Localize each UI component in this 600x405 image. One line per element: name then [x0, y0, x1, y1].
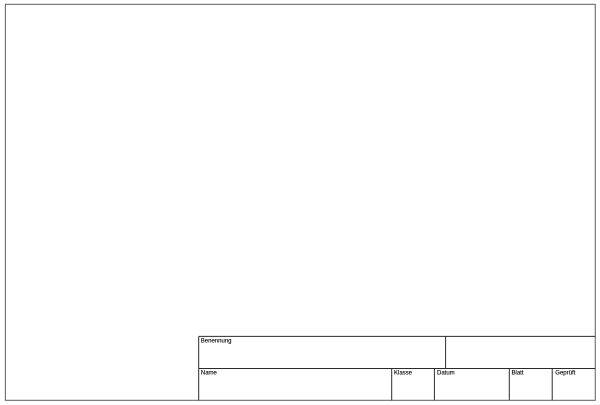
svg-text:Klasse: Klasse	[394, 371, 413, 377]
svg-text:Datum: Datum	[437, 371, 455, 377]
svg-text:Geprüft: Geprüft	[555, 371, 575, 377]
svg-text:Blatt: Blatt	[512, 371, 524, 377]
svg-text:Name: Name	[201, 371, 218, 377]
svg-text:Benennung: Benennung	[201, 339, 232, 345]
